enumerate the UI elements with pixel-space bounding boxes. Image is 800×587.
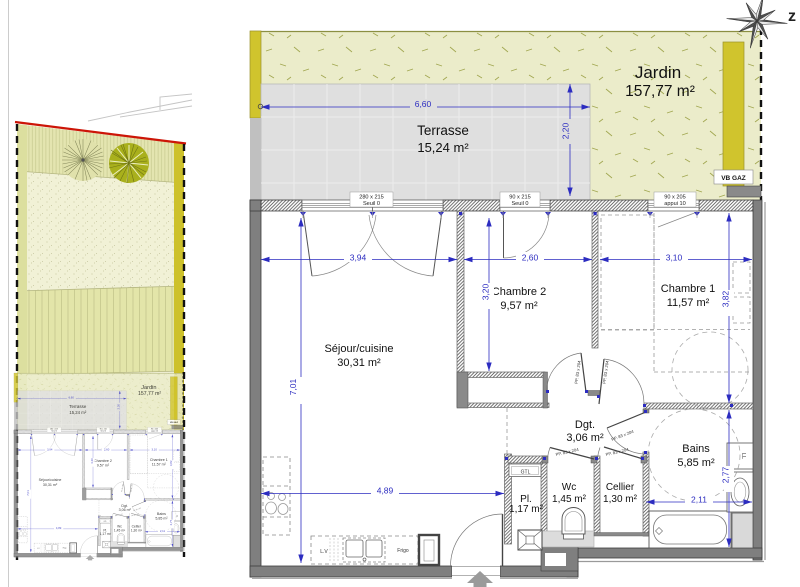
svg-text:2,77: 2,77 <box>721 466 731 483</box>
svg-text:4,89: 4,89 <box>377 486 394 496</box>
svg-text:2,11: 2,11 <box>691 495 707 505</box>
svg-text:3,94: 3,94 <box>350 253 367 263</box>
svg-text:L.V: L.V <box>320 549 328 555</box>
svg-text:3,06 m²: 3,06 m² <box>566 432 604 444</box>
svg-text:30,31 m²: 30,31 m² <box>337 357 381 369</box>
svg-text:LL: LL <box>740 453 746 459</box>
svg-text:Terrasse: Terrasse <box>417 123 469 138</box>
svg-text:GTL: GTL <box>521 470 531 476</box>
svg-text:Séjour/cuisine: Séjour/cuisine <box>324 343 393 355</box>
svg-text:Dgt.: Dgt. <box>575 419 595 431</box>
svg-text:Bains: Bains <box>682 443 710 455</box>
svg-text:2,60: 2,60 <box>522 253 539 263</box>
svg-text:VB GAZ: VB GAZ <box>721 175 746 182</box>
svg-text:z: z <box>788 8 796 25</box>
svg-text:6,60: 6,60 <box>415 99 432 109</box>
svg-text:appui 10: appui 10 <box>664 201 685 207</box>
svg-text:Frigo: Frigo <box>397 548 409 554</box>
svg-text:Jardin: Jardin <box>635 63 681 82</box>
svg-text:157,77 m²: 157,77 m² <box>625 83 695 100</box>
svg-text:Seuil 0: Seuil 0 <box>363 201 380 207</box>
svg-text:7,01: 7,01 <box>288 378 298 395</box>
svg-text:9,57 m²: 9,57 m² <box>500 300 538 312</box>
svg-text:11,57 m²: 11,57 m² <box>667 297 710 309</box>
svg-text:90 x 215: 90 x 215 <box>509 195 530 201</box>
svg-text:1,45 m²: 1,45 m² <box>552 494 587 505</box>
svg-text:5,85 m²: 5,85 m² <box>677 457 715 469</box>
svg-text:Chambre 1: Chambre 1 <box>661 283 715 295</box>
svg-text:3,20: 3,20 <box>481 283 491 300</box>
svg-text:90 x 205: 90 x 205 <box>664 195 685 201</box>
svg-text:1,17 m²: 1,17 m² <box>509 504 544 515</box>
svg-text:2,20: 2,20 <box>561 122 571 139</box>
svg-text:3,82: 3,82 <box>721 290 731 307</box>
svg-text:280 x 215: 280 x 215 <box>359 195 384 201</box>
svg-text:Seuil 0: Seuil 0 <box>511 201 528 207</box>
svg-text:Wc: Wc <box>562 482 576 493</box>
svg-text:Chambre 2: Chambre 2 <box>492 286 546 298</box>
svg-text:3,10: 3,10 <box>666 253 683 263</box>
svg-text:1,30 m²: 1,30 m² <box>603 494 638 505</box>
svg-text:15,24 m²: 15,24 m² <box>417 140 469 155</box>
svg-text:Cellier: Cellier <box>606 482 635 493</box>
